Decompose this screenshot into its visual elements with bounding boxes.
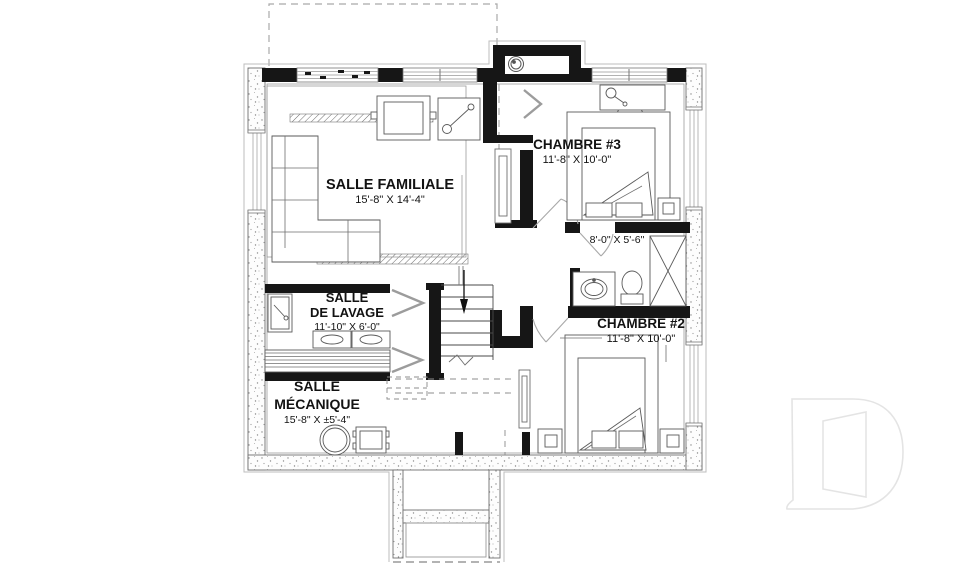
linen-closet [650,236,686,306]
pillow [619,431,643,448]
staircase [441,266,493,365]
door-mechanical-dashed [387,377,427,399]
dims-chambre2: 11'-8" X 10'-0" [607,333,676,345]
door-panel-chambre2 [519,370,530,428]
vanity-sink [573,272,615,306]
label-salle-familiale: SALLE FAMILIALE [326,177,454,193]
door-panel-hall [495,149,511,223]
cellar-pit-outline [406,523,486,557]
laundry-sink-cabinet [268,294,292,332]
window-family-left [297,68,378,82]
mechanical-equipment [320,425,389,455]
furniture-chambre2 [538,335,684,453]
dryer [352,331,390,348]
pillow [586,203,612,217]
armchair-table [438,98,480,140]
bed-chambre3 [567,112,670,220]
label-salle-mecanique-1: SALLE [294,378,340,394]
label-chambre2: CHAMBRE #2 [597,316,685,331]
nightstand-chambre3 [658,198,680,220]
nightstand-chambre2-left [538,429,562,453]
bathroom-fixtures [573,236,686,306]
pillow [592,431,616,448]
window-family-right [403,68,477,82]
window-chambre3-side [685,107,703,210]
tv-console [371,96,436,140]
toilet [621,271,643,304]
door-mechanical [392,348,422,372]
label-salle-mecanique-2: MÉCANIQUE [274,396,360,412]
dims-salle-mecanique: 15'-8" X ±5'-4" [284,414,351,426]
d-logo-watermark [787,399,903,509]
window-chambre3-top [592,68,667,82]
floor-plan-page: SALLE FAMILIALE 15'-8" X 14'-4" CHAMBRE … [0,0,960,569]
label-salle-de-lavage-2: DE LAVAGE [310,305,384,320]
furnace [353,427,389,453]
label-chambre3: CHAMBRE #3 [533,137,621,152]
window-family-side [247,130,266,213]
label-salle-de-lavage-1: SALLE [326,290,369,305]
window-chambre2-side [685,342,703,426]
dims-salle-de-bain: 8'-0" X 5'-6" [590,234,645,246]
dims-salle-de-lavage: 11'-10" X 6'-0" [314,321,380,333]
folding-counter [265,350,390,372]
dims-chambre3: 11'-8" X 10'-0" [543,154,612,166]
pillow [616,203,642,217]
nightstand-chambre2-right [660,429,684,453]
door-laundry [392,290,423,316]
door-chambre3 [524,90,541,118]
water-heater [320,425,350,455]
floor-plan: SALLE FAMILIALE 15'-8" X 14'-4" CHAMBRE … [0,0,960,569]
stair-down-arrow [460,270,468,314]
washer [313,331,351,348]
furniture-chambre3 [567,85,680,220]
bed-chambre2 [565,335,658,453]
dims-salle-familiale: 15'-8" X 14'-4" [355,194,425,206]
